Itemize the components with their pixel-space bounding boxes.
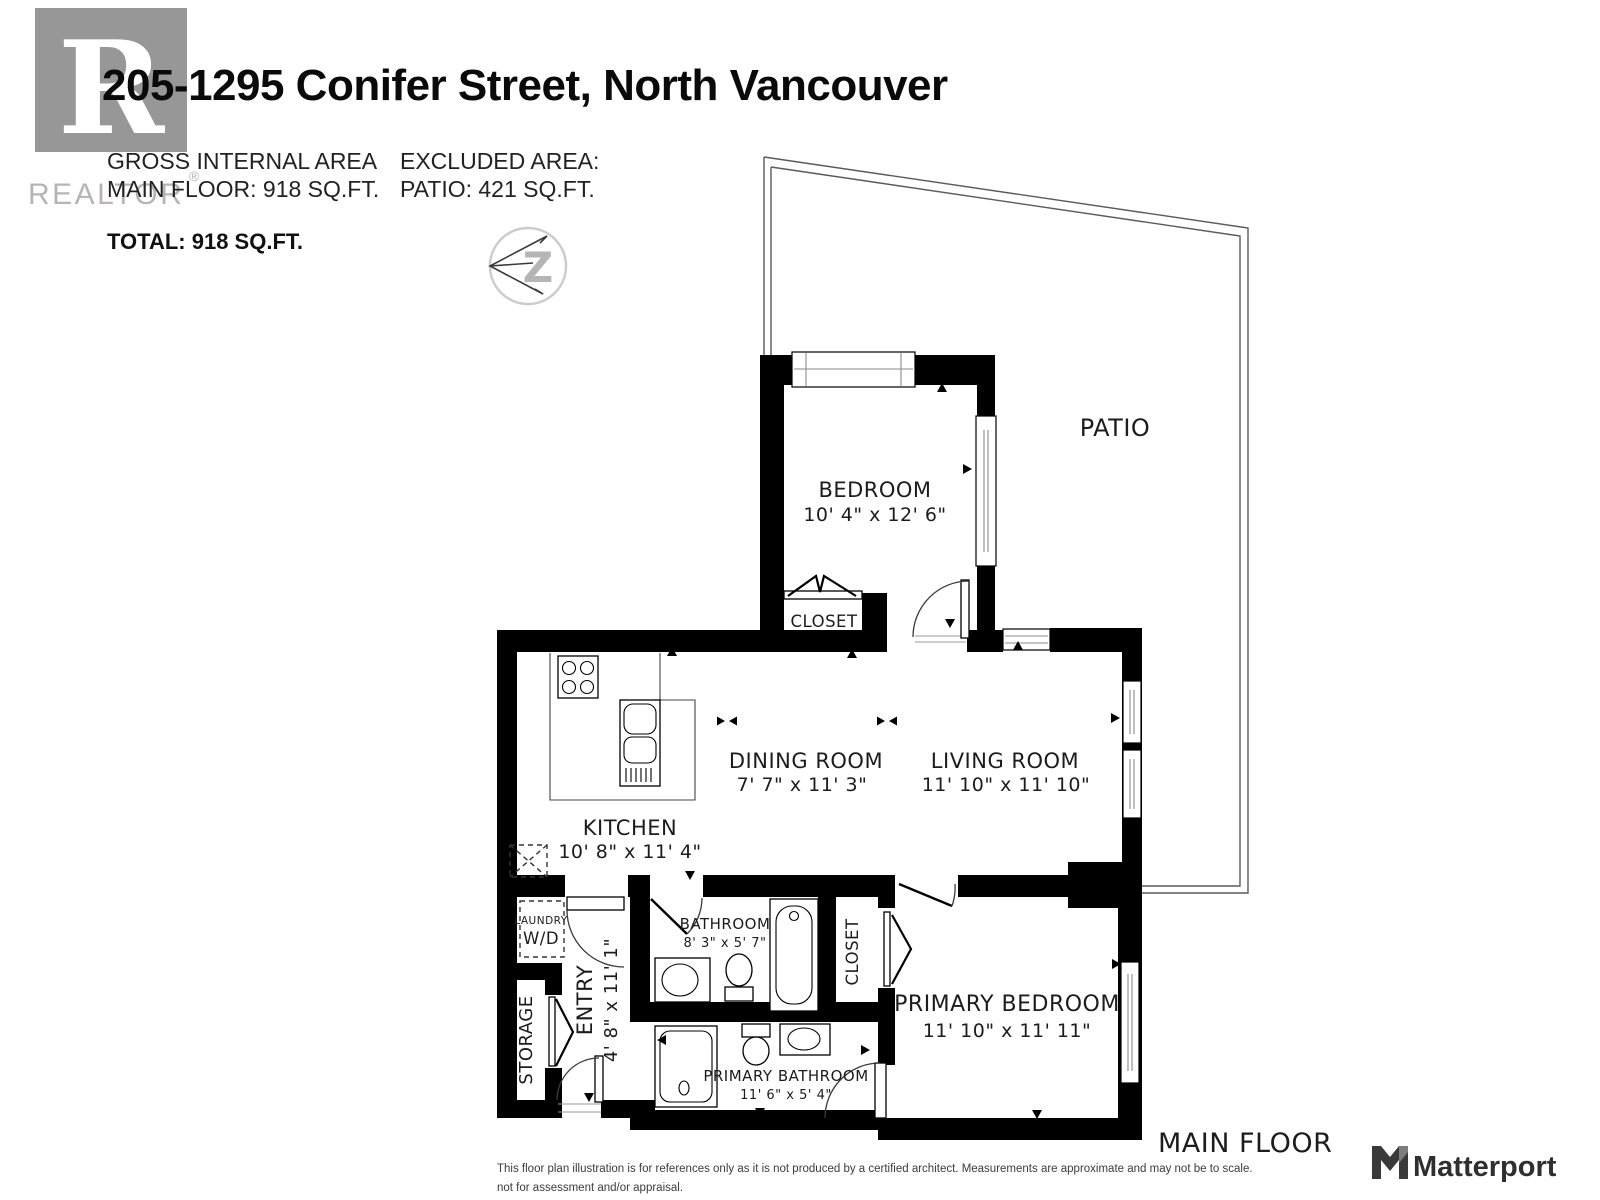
disclaimer-line1: This floor plan illustration is for refe… (497, 1163, 1253, 1175)
bathroom-dims: 8' 3" x 5' 7" (684, 936, 767, 951)
storage-doors (549, 997, 555, 1066)
bedroom-door (961, 580, 969, 638)
excluded-area-label: EXCLUDED AREA: (400, 148, 599, 174)
bedroom-label: BEDROOM (818, 478, 931, 502)
bathroom-label: BATHROOM (680, 915, 771, 933)
toilet-tank (725, 987, 753, 1001)
primary-bathroom-label: PRIMARY BATHROOM (703, 1067, 868, 1085)
bedroom-closet-label: CLOSET (790, 612, 858, 631)
primary-bedroom-dims: 11' 10" x 11' 11" (923, 1020, 1092, 1042)
patio-label: PATIO (1080, 414, 1151, 442)
entry-dims: 4' 8" x 11' 1" (601, 938, 622, 1062)
primary-bathroom-door (875, 1063, 886, 1118)
area-summary: GROSS INTERNAL AREA MAIN FLOOR: 918 SQ.F… (107, 148, 599, 254)
floorplan-page: R REALTOR ® 205-1295 Conifer Street, Nor… (0, 0, 1600, 1200)
matterport-wordmark: Matterport (1413, 1151, 1557, 1183)
north-compass-icon: Z (490, 228, 566, 304)
entry-hall-door (567, 897, 624, 910)
dining-room-dims: 7' 7" x 11' 3" (737, 774, 868, 796)
disclaimer: This floor plan illustration is for refe… (497, 1163, 1253, 1194)
primary-bedroom-label: PRIMARY BEDROOM (894, 992, 1120, 1017)
toilet (726, 954, 752, 986)
storage-label: STORAGE (516, 995, 537, 1084)
primary-toilet-tank (742, 1024, 770, 1037)
dining-room-label: DINING ROOM (729, 749, 883, 773)
hall-closet-label: CLOSET (843, 918, 862, 986)
primary-toilet (743, 1037, 769, 1065)
living-room-dims: 11' 10" x 11' 10" (922, 774, 1091, 796)
laundry-label: LAUNDRY (514, 915, 568, 927)
gross-area-label: GROSS INTERNAL AREA (107, 148, 378, 174)
primary-closet-doors (884, 912, 890, 986)
primary-bedroom-door (899, 884, 952, 906)
entry-label: ENTRY (573, 965, 597, 1035)
living-room-label: LIVING ROOM (931, 749, 1079, 773)
floor-label: MAIN FLOOR (1158, 1128, 1332, 1159)
gross-area-value: MAIN FLOOR: 918 SQ.FT. (107, 176, 379, 202)
total-area-value: TOTAL: 918 SQ.FT. (107, 229, 303, 254)
kitchen-dims: 10' 8" x 11' 4" (558, 841, 701, 863)
matterport-logo: Matterport (1372, 1146, 1557, 1183)
compass-letter: Z (523, 243, 553, 292)
excluded-area-value: PATIO: 421 SQ.FT. (400, 176, 595, 202)
bedroom-dims: 10' 4" x 12' 6" (803, 504, 946, 526)
primary-bathroom-dims: 11' 6" x 5' 4" (740, 1088, 832, 1103)
disclaimer-line2: not for assessment and/or appraisal. (497, 1182, 683, 1194)
laundry-appliance-label: W/D (523, 929, 559, 948)
page-title: 205-1295 Conifer Street, North Vancouver (102, 61, 948, 110)
kitchen-label: KITCHEN (583, 816, 678, 840)
